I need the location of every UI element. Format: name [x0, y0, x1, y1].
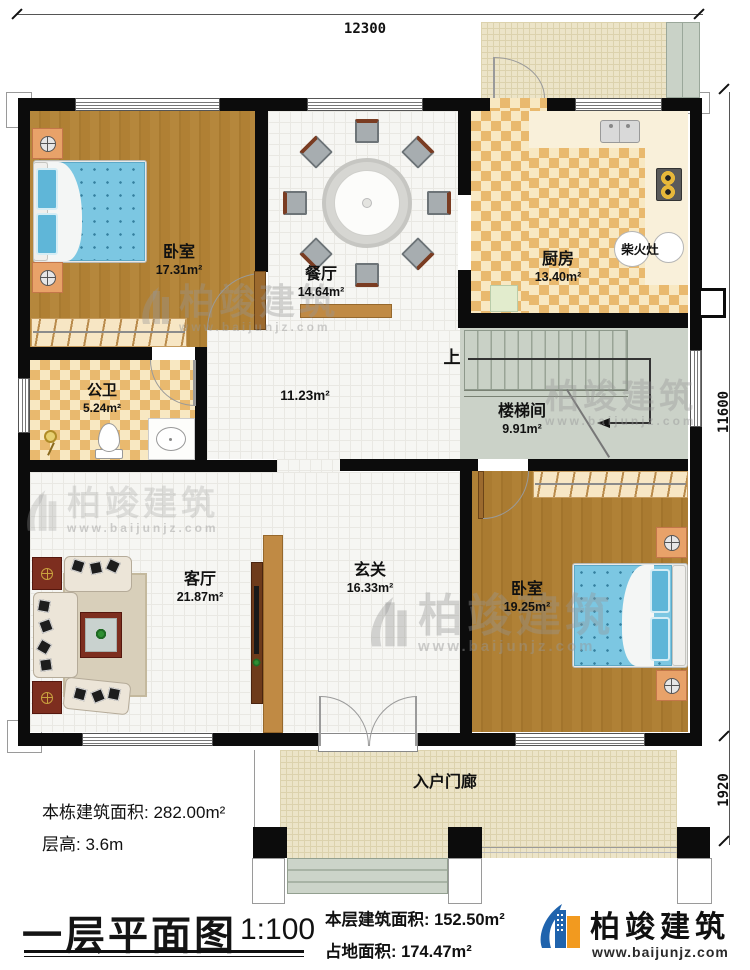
room-label-living: 客厅 21.87m² — [150, 570, 250, 606]
sofa-pillow — [107, 687, 121, 701]
stair-stringer — [464, 390, 628, 397]
pillow — [36, 213, 58, 255]
porch-edge-line — [482, 852, 677, 853]
dimension-tick — [718, 83, 729, 94]
nightstand — [32, 262, 63, 293]
porch-edge-line — [254, 750, 255, 827]
kitchen-mat — [490, 285, 518, 312]
room-label-kitchen: 厨房 13.40m² — [508, 250, 608, 286]
wardrobe-rail — [535, 483, 686, 485]
room-name: 厨房 — [508, 250, 608, 270]
wall — [220, 98, 307, 111]
wall — [195, 347, 207, 460]
wall — [460, 459, 472, 746]
wall — [528, 459, 688, 471]
sofa-pillow — [37, 599, 51, 613]
wall — [547, 98, 575, 111]
sofa-pillow — [89, 561, 103, 575]
window — [515, 733, 645, 746]
wall — [458, 111, 471, 195]
dimension-right-value: 11600 — [716, 385, 732, 439]
room-label-bedroom2: 卧室 19.25m² — [477, 580, 577, 616]
sofa-pillow — [39, 658, 53, 672]
room-area: 9.91m² — [472, 422, 572, 438]
corridor-opening — [277, 459, 340, 472]
nightstand-symbol — [664, 535, 680, 551]
nightstand — [656, 527, 687, 558]
kitchen-door-threshold — [490, 98, 547, 111]
nightstand — [32, 128, 63, 159]
nightstand — [656, 670, 687, 701]
room-label-wood-stove: 柴火灶 — [612, 243, 668, 259]
dining-chair — [283, 191, 307, 215]
wall — [18, 460, 277, 472]
plant — [95, 628, 107, 640]
side-table-symbol — [41, 692, 53, 704]
side-table — [32, 681, 62, 714]
note-building-total: 本栋建筑面积: 282.00m² — [42, 798, 225, 823]
stove-burner — [661, 185, 675, 199]
brand-name: 柏竣建筑 — [590, 902, 730, 946]
stair-up-label: 上 — [441, 347, 463, 368]
wall — [458, 270, 471, 313]
wall — [18, 433, 30, 746]
bedroom1-door-leaf — [254, 271, 266, 330]
room-area: 5.24m² — [52, 401, 152, 416]
window — [75, 98, 220, 111]
stair-direction-line — [610, 422, 650, 424]
title-underline — [24, 956, 304, 957]
bed-headboard — [672, 565, 686, 666]
brand-logo-icon — [534, 902, 584, 950]
wall — [340, 459, 478, 471]
pillow — [650, 617, 670, 661]
sheet-scale: 1:100 — [240, 913, 315, 947]
stair-direction-arrow — [597, 418, 610, 428]
dimension-tick — [718, 730, 729, 741]
brand-url: www.baijunjz.com — [592, 944, 729, 960]
room-area: 14.64m² — [271, 285, 371, 301]
porch-column — [677, 827, 710, 858]
faucet-dot — [626, 124, 630, 128]
tv-partition-wall — [263, 535, 283, 733]
room-label-stairwell: 楼梯间 9.91m² — [472, 402, 572, 438]
bedroom2-wardrobe — [533, 471, 688, 498]
nightstand-symbol — [40, 270, 56, 286]
back-porch-steps — [666, 22, 700, 98]
room-name: 卧室 — [477, 580, 577, 600]
porch-column — [253, 827, 287, 858]
dimension-top-value: 12300 — [330, 21, 400, 37]
faucet-dot — [609, 124, 613, 128]
room-name: 楼梯间 — [472, 402, 572, 422]
room-label-bedroom1: 卧室 17.31m² — [129, 243, 229, 279]
room-label-hall: 玄关 16.33m² — [320, 561, 420, 597]
wall — [18, 98, 30, 378]
bedroom1-wardrobe — [31, 318, 187, 347]
column-base — [252, 858, 285, 904]
stair-direction-line — [468, 358, 650, 360]
dining-table-center — [362, 198, 372, 208]
wall — [458, 313, 688, 328]
room-label-dining: 餐厅 14.64m² — [271, 265, 371, 301]
pillow — [650, 569, 670, 613]
nightstand-symbol — [664, 678, 680, 694]
dining-chair — [427, 191, 451, 215]
room-area: 19.25m² — [477, 600, 577, 616]
note-floor-area: 本层建筑面积: 152.50m² — [325, 906, 505, 930]
room-name: 玄关 — [320, 561, 420, 581]
bathroom-door-leaf — [193, 360, 196, 406]
room-label-corridor: 11.23m² — [255, 388, 355, 405]
window — [690, 350, 702, 427]
sink-drain — [169, 438, 172, 441]
column-base — [448, 858, 482, 904]
room-name: 公卫 — [52, 382, 152, 401]
window — [575, 98, 662, 111]
plant — [252, 658, 261, 667]
room-name: 卧室 — [129, 243, 229, 263]
column-base — [677, 858, 712, 904]
wall — [255, 111, 268, 272]
room-area: 13.40m² — [508, 270, 608, 286]
kitchen-sink — [600, 120, 640, 143]
window — [307, 98, 423, 111]
porch-edge-line — [482, 847, 677, 848]
kitchen-tiles — [529, 285, 688, 313]
room-label-bathroom: 公卫 5.24m² — [52, 382, 152, 416]
chimney-flue — [698, 288, 726, 318]
dining-chair — [355, 119, 379, 143]
kitchen-porch-door-leaf — [493, 57, 495, 98]
wall — [423, 98, 490, 111]
window — [18, 378, 30, 433]
wall — [18, 733, 82, 746]
dimension-porch-value: 1920 — [716, 768, 732, 812]
room-area: 21.87m² — [150, 590, 250, 606]
room-label-porch: 入户门廊 — [400, 773, 490, 793]
nightstand-symbol — [40, 136, 56, 152]
floor-plan: 柏竣建筑 www.baijunjz.com 柏竣建筑 www.baijunjz.… — [0, 0, 750, 970]
stair-treads — [464, 330, 628, 390]
wall — [213, 733, 318, 746]
room-name: 客厅 — [150, 570, 250, 590]
sideboard — [300, 304, 392, 318]
room-name: 餐厅 — [271, 265, 371, 285]
note-floor-height: 层高: 3.6m — [42, 830, 123, 855]
wall — [662, 98, 702, 111]
wall — [18, 347, 152, 360]
porch-column — [448, 827, 482, 858]
room-area: 16.33m² — [320, 581, 420, 597]
dimension-tick — [718, 835, 729, 846]
room-area: 17.31m² — [129, 263, 229, 279]
brand-logo: 柏竣建筑 www.baijunjz.com — [534, 900, 744, 966]
stove-burner — [661, 171, 675, 185]
side-table — [32, 557, 62, 590]
dimension-line-top — [17, 14, 703, 15]
wall — [690, 427, 702, 746]
wardrobe-rail — [33, 331, 185, 333]
pillow — [36, 168, 58, 210]
toilet-bowl — [98, 423, 120, 452]
title-underline — [24, 950, 304, 953]
tv — [254, 586, 259, 654]
shower-head — [44, 430, 57, 443]
entry-steps — [287, 858, 448, 894]
window — [82, 733, 213, 746]
note-footprint: 占地面积: 174.47m² — [325, 938, 472, 962]
side-table-symbol — [41, 568, 53, 580]
stair-direction-line — [649, 358, 651, 424]
